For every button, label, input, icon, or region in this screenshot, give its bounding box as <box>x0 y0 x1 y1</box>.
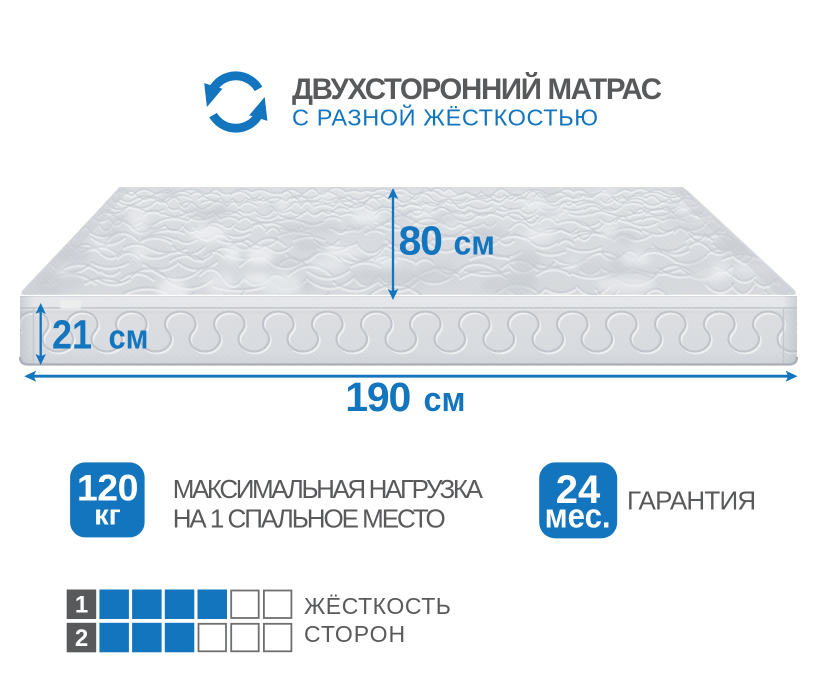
svg-text:см: см <box>424 381 466 419</box>
svg-text:ЖЁСТКОСТЬ: ЖЁСТКОСТЬ <box>304 593 451 619</box>
svg-text:1: 1 <box>75 592 88 619</box>
svg-text:НА 1 СПАЛЬНОЕ МЕСТО: НА 1 СПАЛЬНОЕ МЕСТО <box>173 503 445 533</box>
svg-text:2: 2 <box>75 625 88 652</box>
svg-text:С РАЗНОЙ ЖЁСТКОСТЬЮ: С РАЗНОЙ ЖЁСТКОСТЬЮ <box>292 104 599 131</box>
svg-text:СТОРОН: СТОРОН <box>304 621 406 647</box>
svg-text:см: см <box>109 319 149 357</box>
svg-text:190: 190 <box>345 374 410 420</box>
svg-text:80: 80 <box>399 217 443 263</box>
svg-text:кг: кг <box>94 500 121 532</box>
svg-text:МАКСИМАЛЬНАЯ НАГРУЗКА: МАКСИМАЛЬНАЯ НАГРУЗКА <box>173 474 484 504</box>
svg-text:21: 21 <box>52 312 92 358</box>
svg-text:см: см <box>454 224 496 262</box>
svg-text:мес.: мес. <box>545 497 611 535</box>
svg-text:ГАРАНТИЯ: ГАРАНТИЯ <box>627 485 755 515</box>
svg-text:ДВУХСТОРОННИЙ МАТРАС: ДВУХСТОРОННИЙ МАТРАС <box>292 72 662 106</box>
